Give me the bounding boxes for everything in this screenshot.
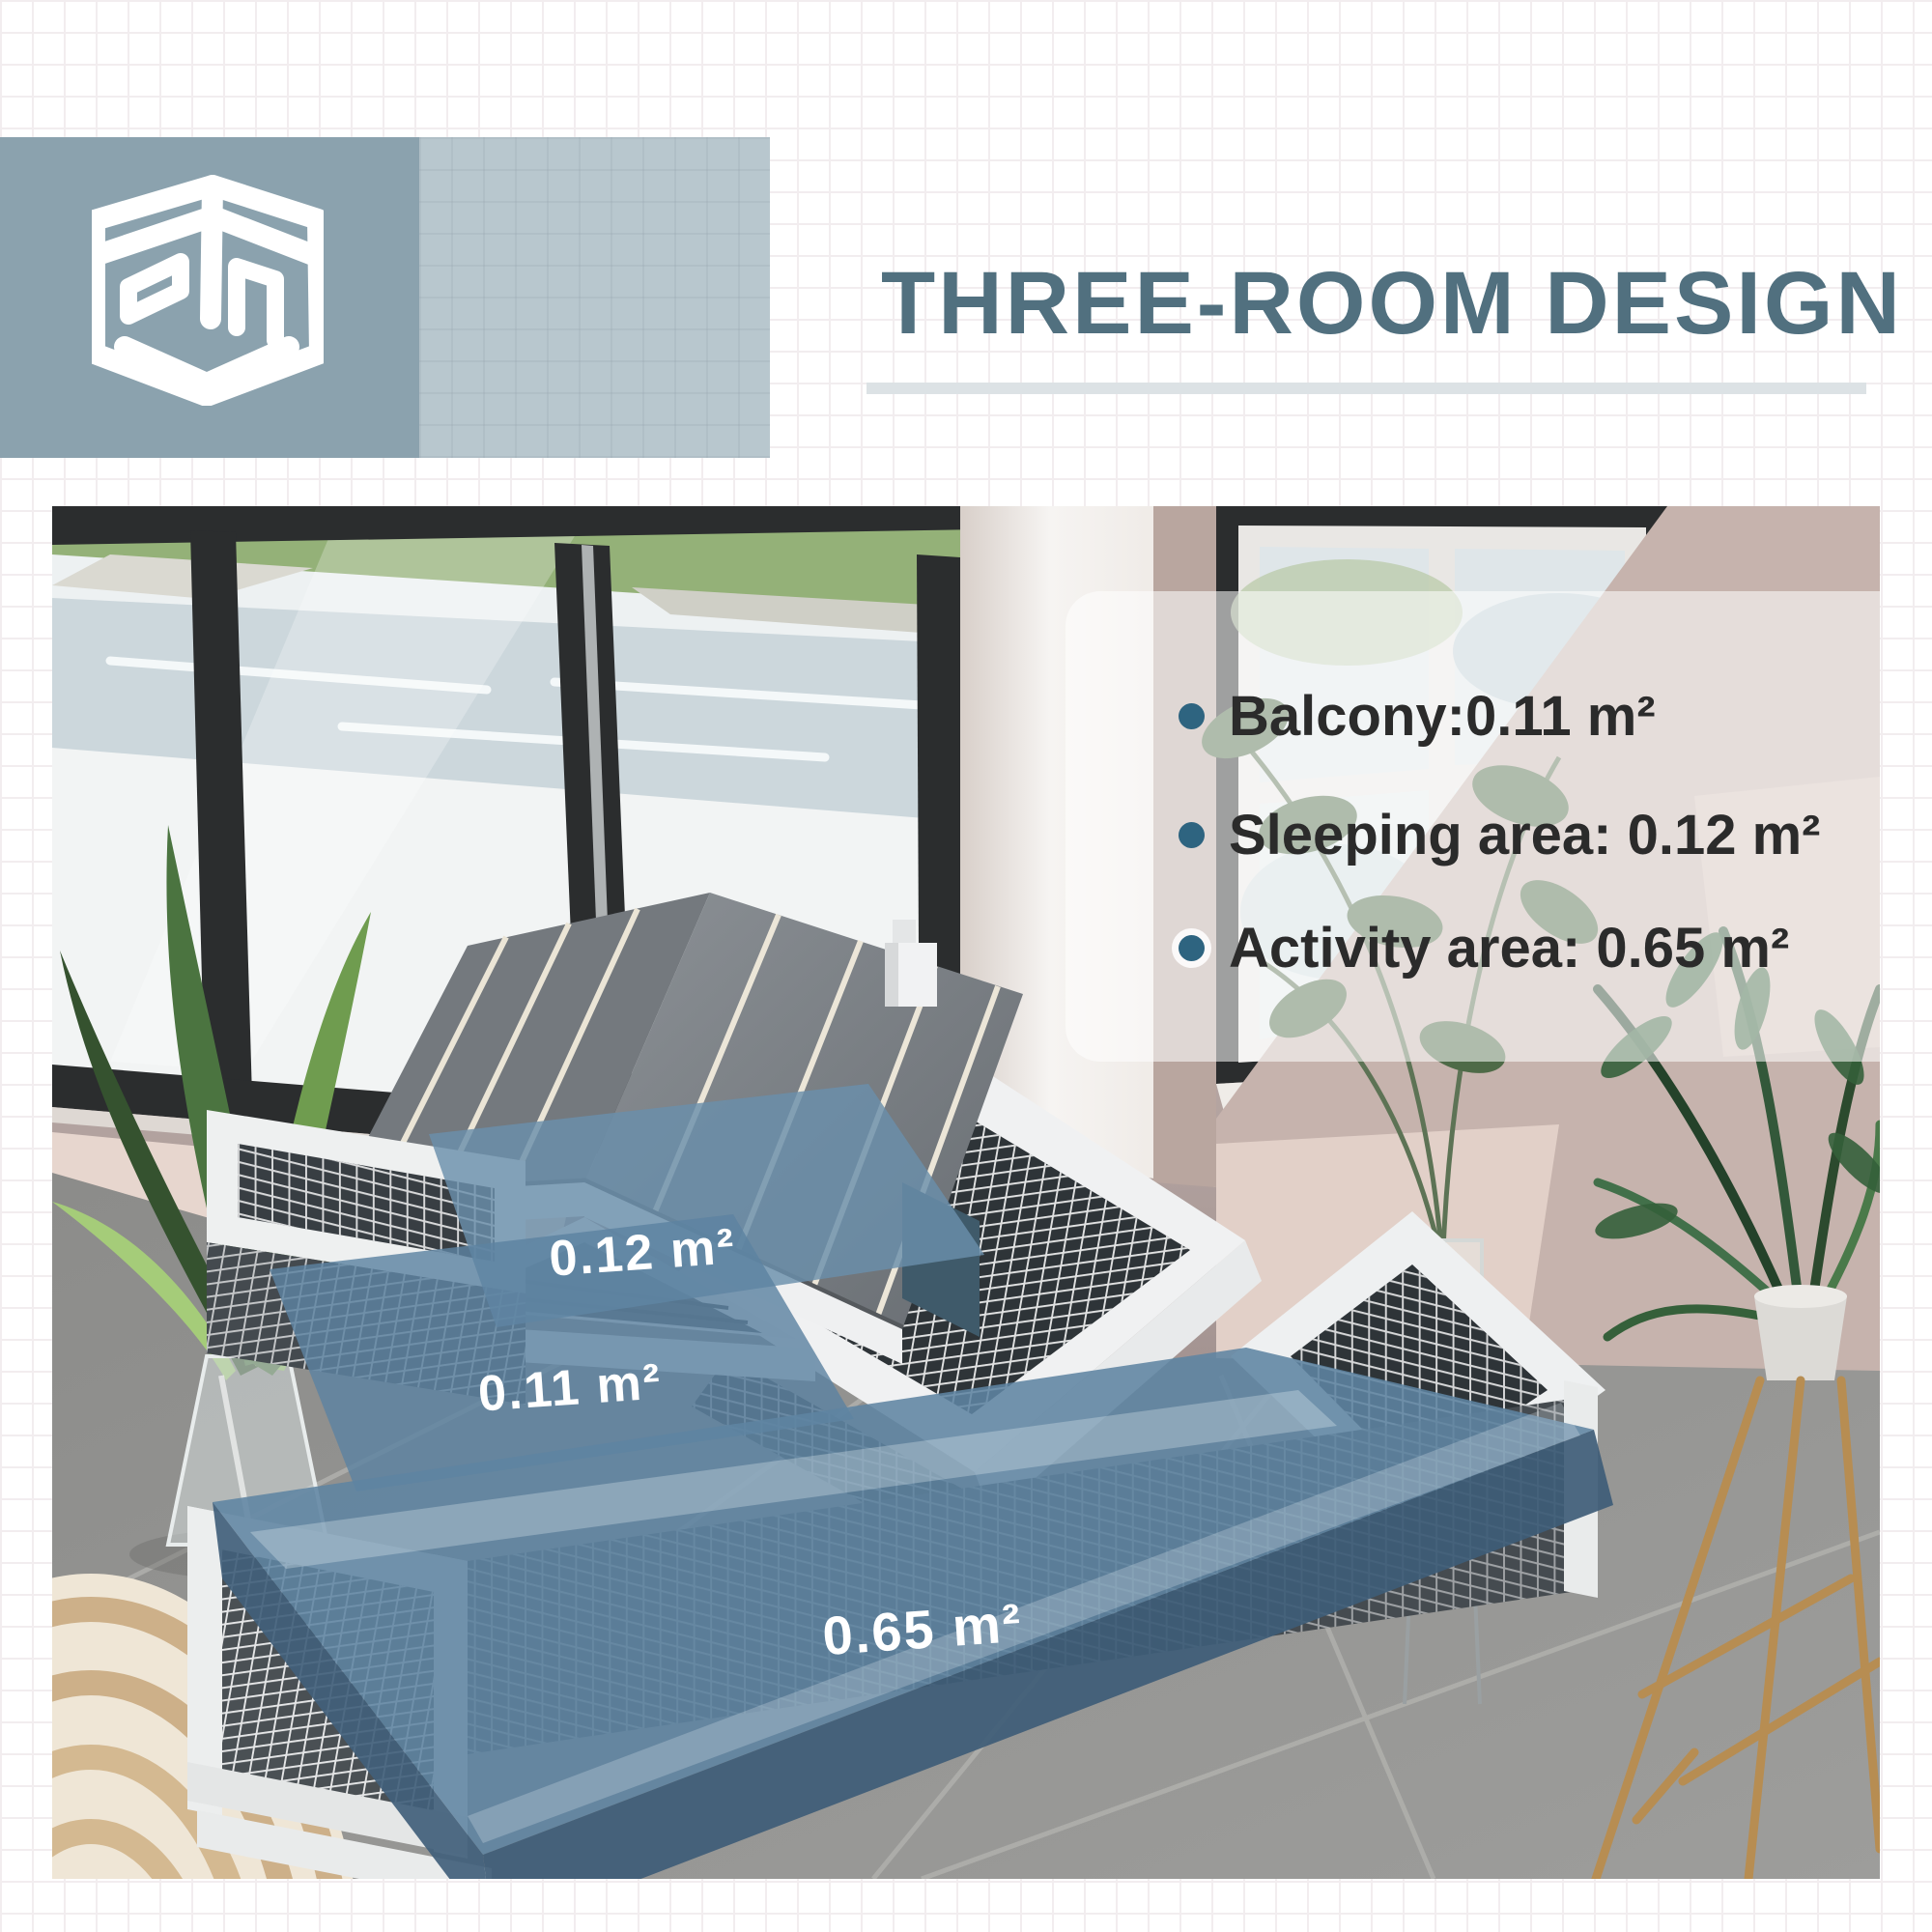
brand-block-light	[419, 137, 770, 458]
feature-label: Sleeping area: 0.12 m²	[1229, 802, 1820, 869]
bullet-dot-icon	[1179, 935, 1205, 961]
feature-panel: Balcony:0.11 m² Sleeping area: 0.12 m² A…	[1065, 591, 1880, 1062]
feature-item-balcony: Balcony:0.11 m²	[1065, 683, 1880, 751]
title-underline	[867, 383, 1866, 394]
feature-label: Activity area: 0.65 m²	[1229, 915, 1789, 982]
feature-item-sleeping: Sleeping area: 0.12 m²	[1065, 802, 1880, 869]
page-title: THREE-ROOM DESIGN	[881, 253, 1903, 355]
bullet-dot-icon	[1179, 822, 1205, 848]
product-photo: 0.12 m² 0.11 m² 0.65 m²	[52, 506, 1880, 1879]
brand-logo-icon	[92, 174, 324, 406]
feature-item-activity: Activity area: 0.65 m²	[1065, 915, 1880, 982]
feature-label: Balcony:0.11 m²	[1229, 683, 1656, 751]
bullet-dot-icon	[1179, 703, 1205, 729]
page-background: THREE-ROOM DESIGN	[0, 0, 1932, 1932]
